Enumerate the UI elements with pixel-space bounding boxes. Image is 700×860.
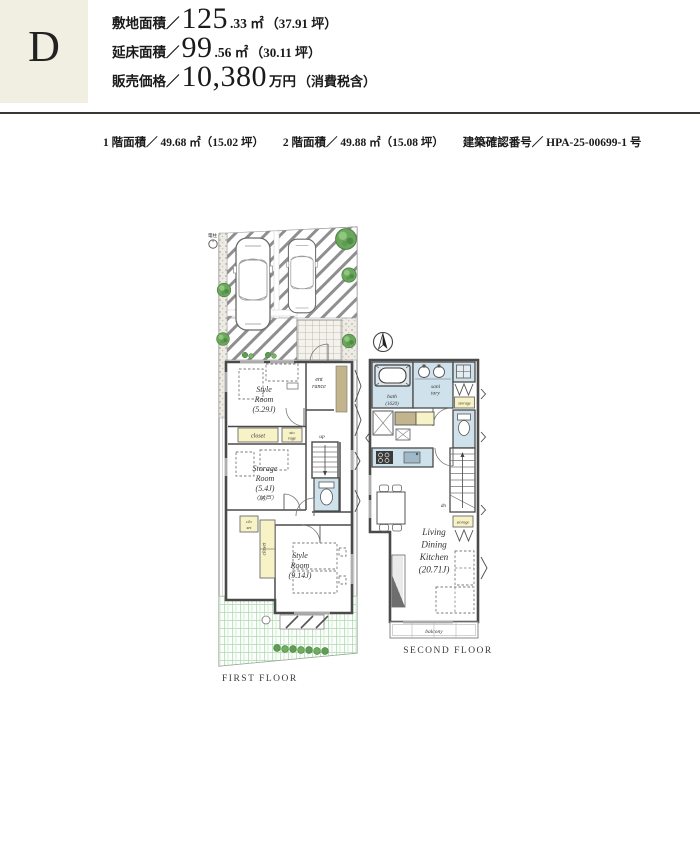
second-floor-area: 2 階面積／ 49.88 ㎡（15.08 坪） <box>283 137 444 149</box>
second-floor-plan: balcony bath (1620) sani tary <box>365 325 505 665</box>
style-room-1-label: Style <box>256 385 272 394</box>
svg-text:tary: tary <box>431 391 440 397</box>
spec-tax-note: （消費税含） <box>298 71 376 90</box>
toilet-room-1f <box>314 478 339 511</box>
toilet-icon <box>459 421 470 436</box>
svg-text:Living: Living <box>421 527 446 537</box>
window-marker <box>481 505 486 515</box>
spec-unit: .56 ㎡ <box>215 41 249 61</box>
bath-label: bath <box>387 394 397 400</box>
spec-label: 販売価格／ <box>112 70 180 90</box>
spec-label: 延床面積／ <box>112 41 180 61</box>
first-floor-caption: FIRST FLOOR <box>222 674 298 684</box>
kitchen <box>372 448 433 467</box>
toilet-room-2f <box>453 410 475 448</box>
stairs-down-label: dn <box>441 503 447 509</box>
spec-value: 10,380 <box>182 60 268 94</box>
spec-site-area: 敷地面積／ 125 .33 ㎡ （37.91 坪） <box>112 2 376 31</box>
sub-info-line: 1 階面積／ 49.68 ㎡（15.02 坪） 2 階面積／ 49.88 ㎡（1… <box>103 134 657 150</box>
svg-text:〈納戸〉: 〈納戸〉 <box>253 494 277 502</box>
svg-text:rage: rage <box>288 436 296 441</box>
north-arrow-icon <box>374 333 393 352</box>
bush-icon <box>242 352 248 358</box>
spec-floor-area: 延床面積／ 99 .56 ㎡ （30.11 坪） <box>112 31 376 60</box>
balcony: balcony <box>390 622 478 638</box>
tv-board <box>392 555 405 607</box>
entrance-label: ent <box>315 377 323 383</box>
svg-text:(1620): (1620) <box>385 402 399 407</box>
spec-price: 販売価格／ 10,380 万円 （消費税含） <box>112 60 376 89</box>
window-marker <box>481 389 486 399</box>
bathroom: bath (1620) <box>372 362 413 408</box>
svg-text:(5.4J): (5.4J) <box>256 484 275 493</box>
spec-tsubo: （37.91 坪） <box>266 13 338 32</box>
storage-room-label: Storage <box>253 464 278 473</box>
header-divider <box>0 112 700 114</box>
dining-set <box>377 485 405 531</box>
entrance-porch <box>297 320 342 360</box>
counter <box>395 412 416 425</box>
svg-text:Dining: Dining <box>420 540 447 550</box>
car-icon <box>234 238 273 330</box>
counter <box>416 412 434 425</box>
spec-tsubo: （30.11 坪） <box>250 42 321 61</box>
style-room-2-label: Style <box>292 551 308 560</box>
svg-text:set: set <box>247 525 253 530</box>
svg-text:(9.14J): (9.14J) <box>289 571 312 580</box>
svg-text:rance: rance <box>312 384 326 390</box>
spec-unit: .33 ㎡ <box>230 12 264 32</box>
dining-table-icon <box>377 492 405 524</box>
window-marker <box>481 557 487 579</box>
closet-label: clo <box>246 519 252 524</box>
bush-icon <box>249 354 254 359</box>
plan-letter-badge: D <box>0 0 88 103</box>
closet-row: closet sto rage <box>238 428 302 442</box>
car-icon <box>286 239 317 313</box>
toilet-icon <box>458 414 471 420</box>
window-marker <box>481 432 486 442</box>
bush-icon <box>272 354 277 359</box>
svg-text:Room: Room <box>254 395 274 404</box>
toilet-icon <box>321 489 333 505</box>
first-floor-area: 1 階面積／ 49.68 ㎡（15.02 坪） <box>103 137 264 149</box>
chair-icon <box>393 525 402 532</box>
utility-room <box>453 362 475 382</box>
stairs-up-label: up <box>319 434 325 440</box>
svg-text:(20.71J): (20.71J) <box>419 565 450 575</box>
storage-label: storage <box>457 520 470 525</box>
chair-icon <box>393 485 402 492</box>
shoe-cabinet <box>336 366 347 412</box>
flyer-page: D 敷地面積／ 125 .33 ㎡ （37.91 坪） 延床面積／ 99 .56… <box>0 0 700 860</box>
chair-icon <box>380 525 389 532</box>
toilet-icon <box>319 482 334 488</box>
plan-letter: D <box>28 25 60 79</box>
sink-icon <box>419 367 430 378</box>
svg-text:Kitchen: Kitchen <box>419 552 449 562</box>
spec-unit: 万円 <box>269 70 296 90</box>
chair-icon <box>380 485 389 492</box>
svg-text:Room: Room <box>290 561 310 570</box>
closet-label: closet <box>262 542 268 555</box>
utility-pole: 電柱 <box>208 232 217 248</box>
spec-list: 敷地面積／ 125 .33 ㎡ （37.91 坪） 延床面積／ 99 .56 ㎡… <box>112 2 376 89</box>
balcony-label: balcony <box>425 629 443 635</box>
stove-icon <box>376 451 393 464</box>
sink-icon <box>434 367 445 378</box>
planter-icon <box>262 616 270 624</box>
storage-label: storage <box>458 401 471 406</box>
svg-text:Room: Room <box>255 474 275 483</box>
bush-icon <box>265 352 271 358</box>
closet-label: closet <box>251 434 265 440</box>
pole-label: 電柱 <box>208 232 217 239</box>
sanitary-label: sani <box>431 384 441 390</box>
svg-text:(5.29J): (5.29J) <box>253 405 276 414</box>
second-floor-caption: SECOND FLOOR <box>403 646 493 656</box>
first-floor-plan: up ent rance Style Room (5.29J) <box>200 220 370 695</box>
spec-label: 敷地面積／ <box>112 12 180 32</box>
storage-label: sto <box>289 430 295 435</box>
building-permit-number: 建築確認番号／ HPA-25-00699-1 号 <box>463 137 642 149</box>
